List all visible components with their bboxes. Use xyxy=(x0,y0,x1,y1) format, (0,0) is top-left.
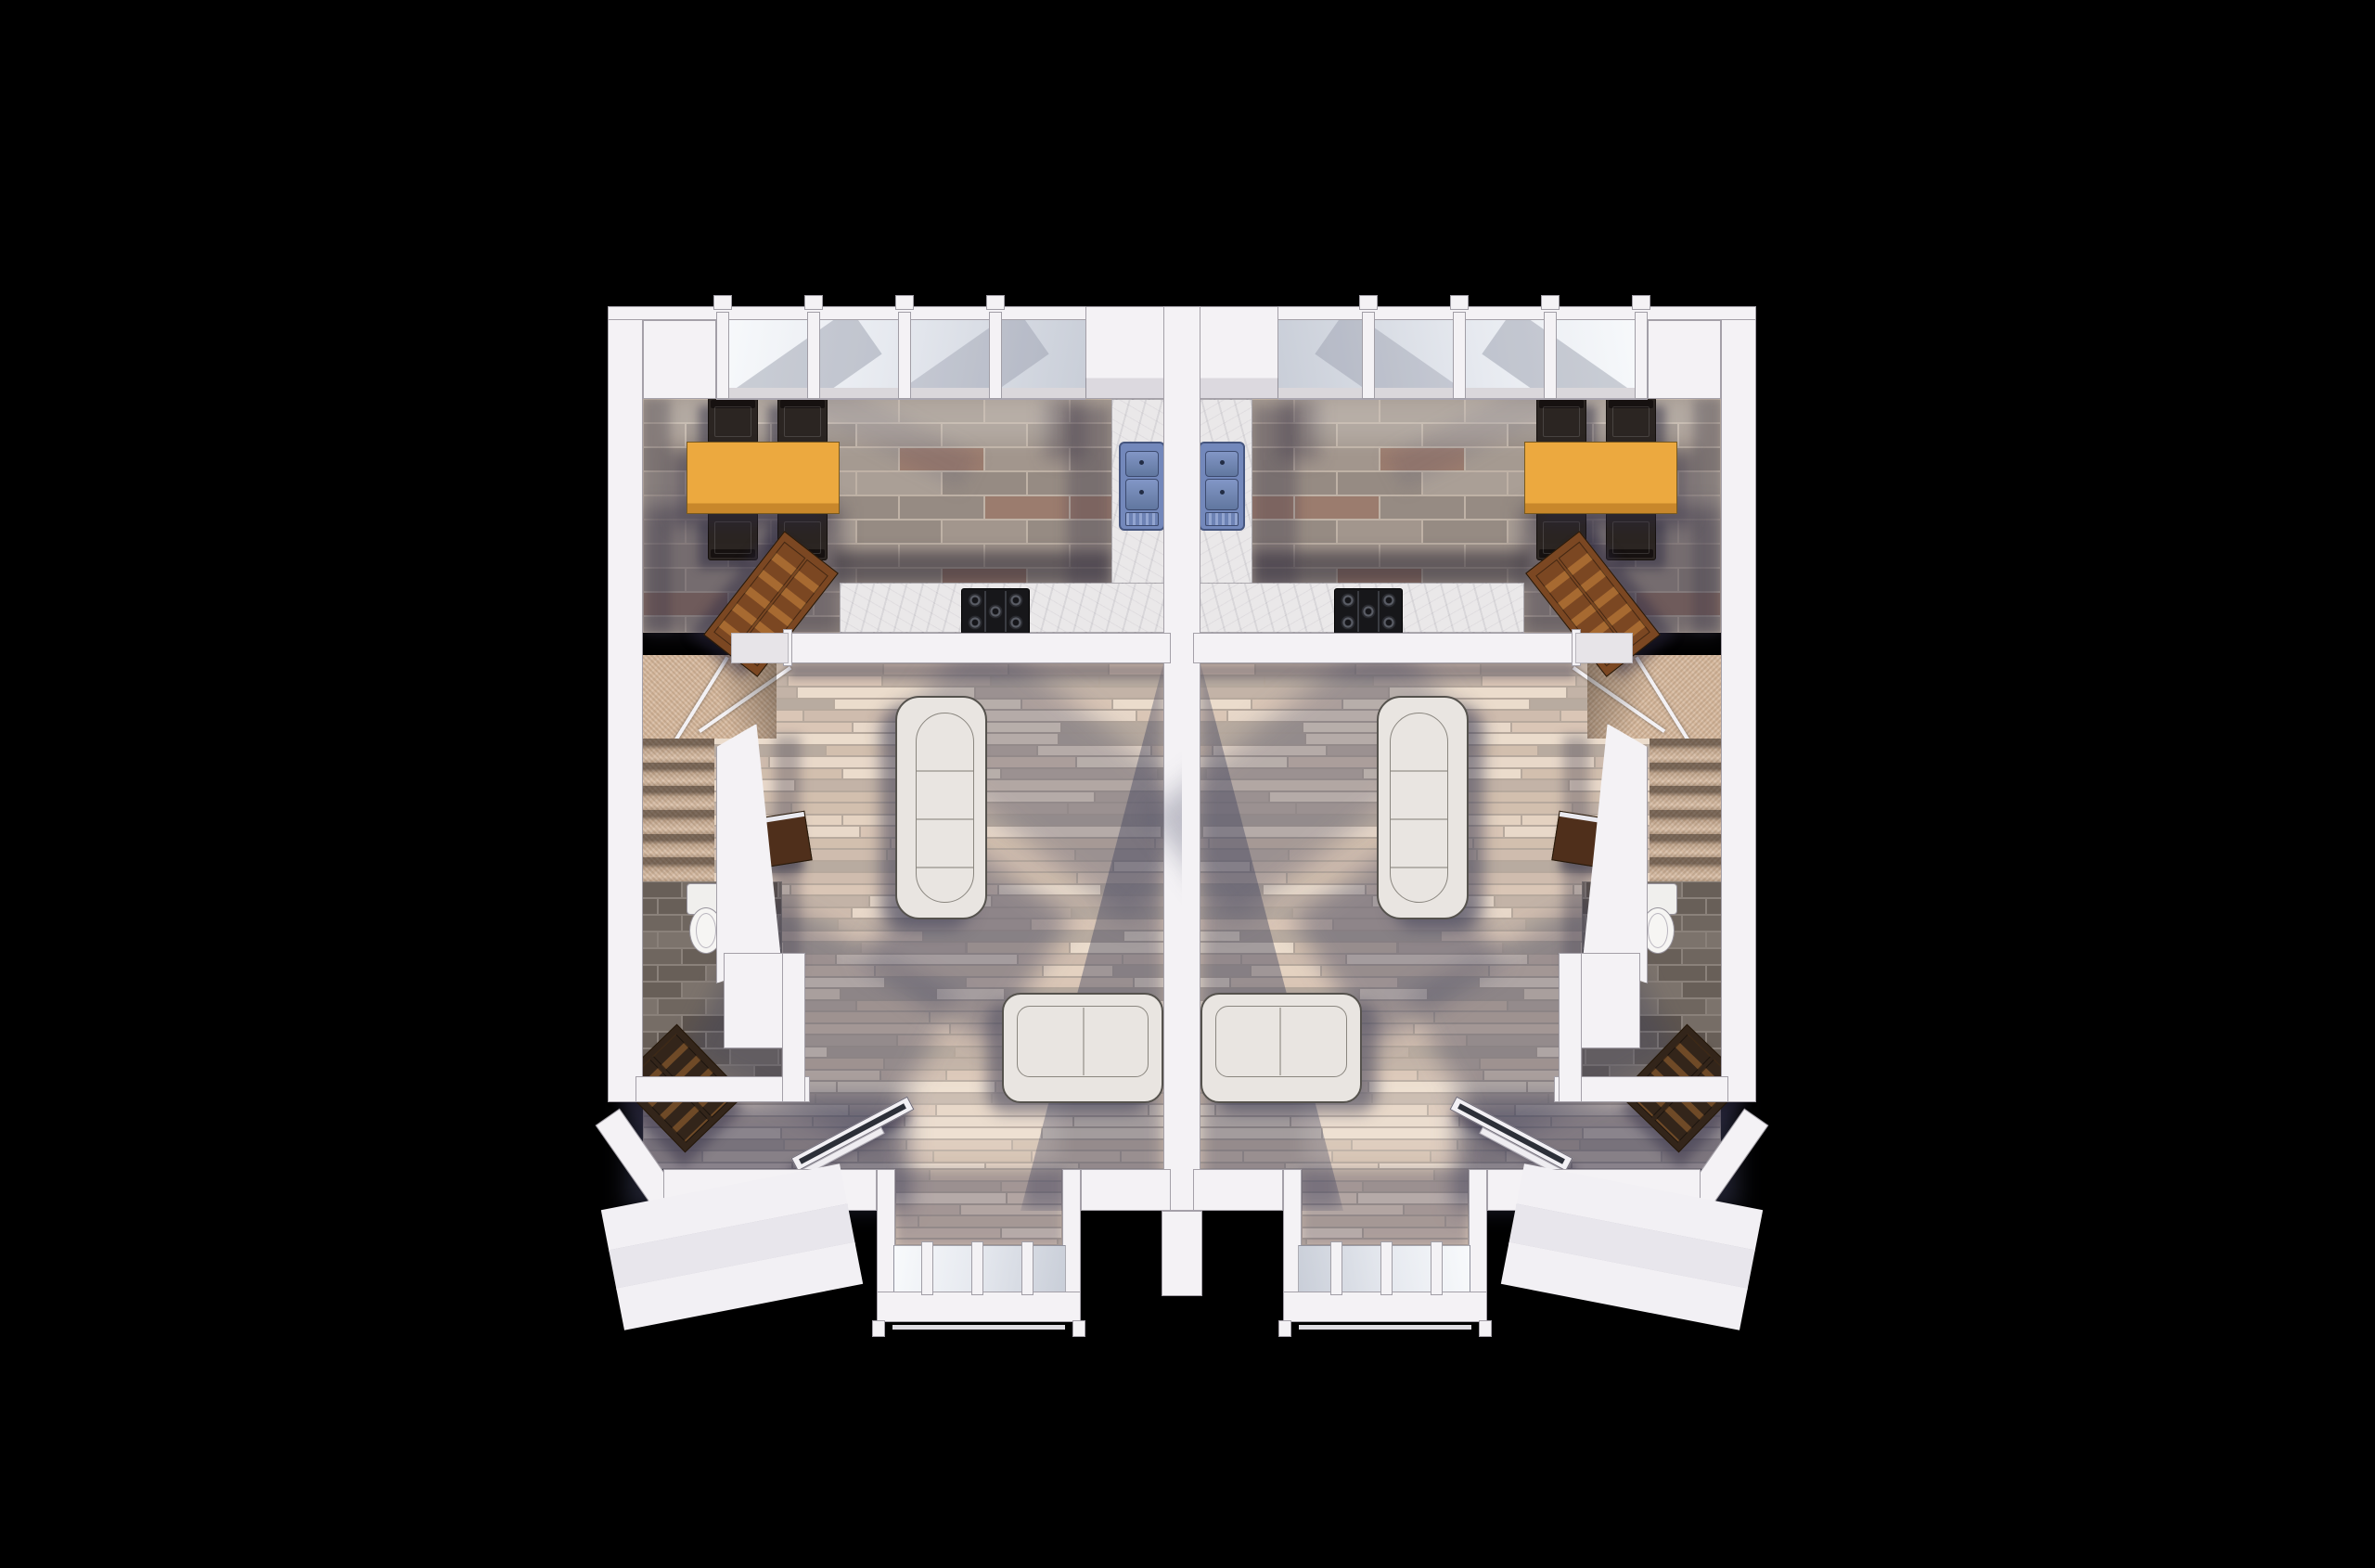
floor-tile xyxy=(659,966,705,981)
hob-center-burner xyxy=(1361,604,1376,619)
chair-backrest xyxy=(1609,549,1653,558)
chimney-breast xyxy=(1085,306,1171,399)
window-mullion-cap xyxy=(895,295,914,310)
floor-plank xyxy=(1231,978,1397,988)
floor-plank xyxy=(1265,676,1372,687)
floor-plank xyxy=(1102,885,1170,895)
floor-tile xyxy=(1583,882,1585,897)
floor-plank xyxy=(1303,1228,1362,1239)
floor-plank xyxy=(1008,1193,1061,1203)
window-mullion-cap xyxy=(1541,295,1560,310)
floor-tile xyxy=(1295,496,1379,519)
bay-window-front xyxy=(877,1292,1081,1322)
floor-plank xyxy=(924,932,1123,942)
floor-tile xyxy=(985,400,1069,422)
glazing-reflection-shadow xyxy=(1315,320,1460,389)
floor-plank xyxy=(1033,1151,1120,1162)
window-mullion xyxy=(1453,312,1466,399)
floor-plank xyxy=(1032,919,1170,930)
hob-burner xyxy=(1341,615,1355,630)
floor-plank xyxy=(919,1216,1061,1227)
floor-plank xyxy=(967,978,1133,988)
floor-plank xyxy=(1291,1117,1458,1127)
floor-plank xyxy=(1297,803,1388,814)
floor-tile xyxy=(1252,521,1336,543)
floor-plank xyxy=(1303,1193,1356,1203)
floor-tile xyxy=(1380,496,1464,519)
bay-window-mullion xyxy=(1330,1241,1342,1295)
floor-plank xyxy=(1364,1182,1468,1192)
floor-tile xyxy=(900,545,983,567)
floor-plank xyxy=(1415,1024,1576,1035)
floor-tile xyxy=(644,617,685,632)
floor-tile xyxy=(900,400,983,422)
bay-front-rail xyxy=(1299,1325,1471,1330)
floor-plank xyxy=(1194,734,1304,744)
wc-side-wall xyxy=(782,953,805,1102)
sink-drainer xyxy=(1125,512,1159,526)
floor-plank xyxy=(1369,1082,1527,1092)
window-mullion-cap xyxy=(1632,295,1650,310)
dwelling-unit-left xyxy=(584,306,1182,1331)
kitchen-sink xyxy=(1199,442,1245,531)
party-wall-front-pier xyxy=(1182,1211,1202,1296)
floor-plank xyxy=(1356,664,1480,675)
floor-plank xyxy=(976,688,1170,698)
floor-tile xyxy=(943,472,1026,495)
floor-plank xyxy=(1303,1240,1305,1244)
floor-plank xyxy=(1194,1117,1290,1127)
floor-plank xyxy=(1419,1071,1483,1081)
floor-tile xyxy=(1423,521,1507,543)
floor-plank xyxy=(1194,966,1250,976)
sink-drain xyxy=(1220,490,1225,495)
floor-tile xyxy=(1423,424,1507,446)
floor-plank xyxy=(961,1205,1061,1215)
floor-plank xyxy=(1410,1047,1535,1058)
floor-plank xyxy=(1446,1216,1468,1227)
dining-chair xyxy=(777,397,828,443)
floor-plank xyxy=(785,943,860,953)
floor-plank xyxy=(1194,873,1286,883)
sofa-small xyxy=(1200,993,1362,1103)
window-mullion-cap xyxy=(713,295,732,310)
floor-plank xyxy=(1399,978,1478,988)
sofa-cushion-seam xyxy=(1280,1008,1282,1075)
floor-tile xyxy=(1679,424,1720,446)
floor-tile xyxy=(1586,1049,1633,1064)
floor-tile xyxy=(1679,569,1720,591)
bay-window-mullion xyxy=(1380,1241,1393,1295)
chair-backrest xyxy=(711,400,755,408)
floor-plank xyxy=(1194,955,1240,965)
floor-tile xyxy=(779,1049,781,1064)
window-mullion xyxy=(1635,312,1648,399)
floor-plank xyxy=(1114,862,1170,872)
gas-hob xyxy=(1334,588,1403,635)
bay-front-rail xyxy=(892,1325,1065,1330)
floor-plank xyxy=(1074,1117,1170,1127)
floor-plank xyxy=(1100,676,1170,687)
floor-plank xyxy=(1110,664,1170,675)
floor-plank xyxy=(1043,1128,1170,1138)
floor-plank xyxy=(862,943,965,953)
floor-plank xyxy=(1113,700,1170,710)
dining-table xyxy=(1524,442,1677,514)
floor-plank xyxy=(1002,1228,1061,1239)
bay-corner-post xyxy=(1479,1320,1492,1337)
floor-tile xyxy=(1295,400,1379,422)
floor-plank xyxy=(1072,908,1170,919)
floor-plank xyxy=(937,1105,1148,1115)
sofa-cushion-seam xyxy=(1083,1008,1085,1075)
floor-tile xyxy=(644,424,685,446)
floor-plank xyxy=(1347,955,1527,965)
floor-plank xyxy=(1002,1182,1061,1192)
chair-backrest xyxy=(711,549,755,558)
floor-plank xyxy=(1194,862,1250,872)
sink-drainer xyxy=(1205,512,1239,526)
floor-plank xyxy=(1019,955,1123,965)
window-mullion xyxy=(1544,312,1557,399)
wc-side-wall xyxy=(1559,953,1582,1102)
sink-drain xyxy=(1139,490,1144,495)
floor-plank xyxy=(837,955,1017,965)
floor-tile xyxy=(731,1049,777,1064)
floor-tile xyxy=(1338,472,1421,495)
floor-plank xyxy=(1059,1240,1061,1244)
front-wall-right xyxy=(1081,1169,1171,1211)
floor-plank xyxy=(788,1024,949,1035)
floor-plank xyxy=(1194,792,1268,803)
floor-tile xyxy=(1338,424,1421,446)
floor-plank xyxy=(1374,676,1481,687)
gas-hob xyxy=(961,588,1030,635)
floor-plank xyxy=(896,1182,1000,1192)
floor-plank xyxy=(1353,1140,1457,1150)
floor-tile xyxy=(1637,593,1720,615)
floor-plank xyxy=(1194,908,1291,919)
floor-tile xyxy=(644,569,685,591)
floor-plank xyxy=(1337,1001,1507,1011)
hob-grate xyxy=(1357,591,1359,632)
floor-plank xyxy=(907,1140,1011,1150)
floor-plank xyxy=(1256,664,1354,675)
outer-wall-side xyxy=(1721,306,1756,1102)
floor-plank xyxy=(876,966,1042,976)
floor-plank xyxy=(841,989,935,999)
floor-tile xyxy=(683,983,729,997)
floor-tile xyxy=(644,472,685,495)
floor-plank xyxy=(896,1193,1006,1203)
window-mullion-cap xyxy=(1450,295,1469,310)
chair-backrest xyxy=(1539,400,1584,408)
floor-plank xyxy=(1203,827,1384,837)
floor-plank xyxy=(1210,839,1395,849)
floor-plank xyxy=(896,1216,918,1227)
hob-grate xyxy=(1378,591,1380,632)
party-wall xyxy=(1182,306,1200,1211)
floor-tile xyxy=(1659,999,1705,1014)
front-wall-right xyxy=(1193,1169,1283,1211)
floor-plank xyxy=(1077,757,1170,767)
glazing-reflection-shadow xyxy=(903,320,1048,389)
floor-plank xyxy=(1076,850,1170,860)
kitchen-doorway-threshold xyxy=(731,633,789,663)
outer-wall-side xyxy=(608,306,643,1102)
window-mullion xyxy=(716,312,729,399)
floor-plank xyxy=(1194,1151,1242,1162)
floor-plank xyxy=(976,803,1067,814)
floor-tile xyxy=(1583,1049,1585,1064)
floor-plank xyxy=(1002,769,1157,779)
floor-tile xyxy=(1635,1016,1681,1031)
sofa-small xyxy=(1002,993,1163,1103)
floor-tile xyxy=(1252,472,1336,495)
floor-plank xyxy=(1194,816,1387,826)
kitchen-doorway-threshold xyxy=(1575,633,1633,663)
kitchen-sink xyxy=(1119,442,1165,531)
dining-table xyxy=(687,442,840,514)
floor-plank xyxy=(789,676,881,687)
hob-burner xyxy=(1381,593,1396,608)
floor-plank xyxy=(1194,803,1295,814)
floor-plank xyxy=(1194,676,1264,687)
floor-tile xyxy=(1679,617,1720,632)
bay-window-mullion xyxy=(1431,1241,1443,1295)
floor-plank xyxy=(1504,943,1579,953)
floor-tile xyxy=(857,472,941,495)
chimney-breast xyxy=(1193,306,1278,399)
floor-plank xyxy=(1194,932,1239,942)
floor-plank xyxy=(937,989,1005,999)
sink-drain xyxy=(1139,460,1144,465)
floor-tile xyxy=(857,424,941,446)
window-mullion xyxy=(989,312,1002,399)
floor-plank xyxy=(1295,943,1397,953)
floor-plank xyxy=(1194,664,1254,675)
dining-chair xyxy=(1536,397,1586,443)
floor-plank xyxy=(1013,1140,1170,1150)
floor-plank xyxy=(1059,734,1170,744)
floor-plank xyxy=(1096,792,1170,803)
floor-tile xyxy=(1338,521,1421,543)
hob-center-burner xyxy=(988,604,1003,619)
floor-tile xyxy=(943,521,1026,543)
floor-plank xyxy=(869,1128,1041,1138)
dining-chair xyxy=(708,512,758,560)
floor-tile xyxy=(1423,472,1507,495)
floor-plank xyxy=(838,1082,995,1092)
window-mullion-cap xyxy=(804,295,823,310)
floor-plank xyxy=(1194,885,1262,895)
floor-plank xyxy=(1194,1163,1284,1169)
floor-plank xyxy=(1242,955,1346,965)
party-wall-front-pier xyxy=(1162,1211,1182,1296)
floor-plank xyxy=(1038,746,1149,756)
understairs-cupboard xyxy=(724,953,784,1048)
floor-plank xyxy=(993,896,1169,906)
floor-tile xyxy=(943,424,1026,446)
floor-plank xyxy=(969,839,1154,849)
window-mullion-cap xyxy=(986,295,1005,310)
floor-plank xyxy=(1078,873,1170,883)
window-mullion xyxy=(898,312,911,399)
dining-chair xyxy=(1606,512,1656,560)
floor-plank xyxy=(883,676,990,687)
party-wall xyxy=(1163,306,1182,1211)
floor-plank xyxy=(1303,1182,1362,1192)
floor-plank xyxy=(1286,1163,1378,1169)
floor-tile xyxy=(683,1016,729,1031)
floor-plank xyxy=(1194,850,1288,860)
floor-plank xyxy=(1069,803,1170,814)
floor-plank xyxy=(881,1071,945,1081)
rendered-floor-plan-scene xyxy=(0,0,2375,1568)
floor-plank xyxy=(999,885,1101,895)
floor-plank xyxy=(1303,1170,1433,1180)
floor-plank xyxy=(839,919,1029,930)
floor-plank xyxy=(1195,896,1371,906)
floor-plank xyxy=(1483,676,1575,687)
floor-plank xyxy=(1071,943,1170,953)
floor-plank xyxy=(896,1205,959,1215)
floor-plank xyxy=(1194,688,1388,698)
floor-plank xyxy=(644,1163,791,1169)
floor-plank xyxy=(1194,700,1251,710)
floor-tile xyxy=(1659,966,1705,981)
hob-grate xyxy=(984,591,986,632)
floor-tile xyxy=(779,882,781,897)
floor-tile xyxy=(1380,545,1464,567)
sofa-cushion-seam xyxy=(916,770,974,772)
sofa-cushion-seam xyxy=(916,867,974,868)
floor-plank xyxy=(1244,1151,1331,1162)
floor-plank xyxy=(1435,1170,1468,1180)
floor-tile xyxy=(659,999,705,1014)
floor-tile xyxy=(900,448,983,470)
hob-burner xyxy=(1008,593,1023,608)
floor-plank xyxy=(1364,1228,1468,1239)
floor-plank xyxy=(1194,723,1302,733)
rear-corner-pier xyxy=(1648,320,1721,399)
bay-corner-post xyxy=(872,1320,885,1337)
floor-tile xyxy=(1028,424,1111,446)
floor-plank xyxy=(977,816,1170,826)
floor-plank xyxy=(1360,989,1428,999)
floor-plank xyxy=(1303,1205,1403,1215)
floor-plank xyxy=(1080,1163,1170,1169)
floor-plank xyxy=(981,827,1162,837)
floor-plank xyxy=(1194,757,1287,767)
floor-tile xyxy=(985,448,1069,470)
sofa-cushion-seam xyxy=(1390,770,1448,772)
floor-plank xyxy=(1022,700,1111,710)
floor-plank xyxy=(644,1140,783,1150)
floor-plank xyxy=(896,1170,929,1180)
sofa-large xyxy=(1377,696,1469,919)
floor-plank xyxy=(1213,746,1325,756)
bay-window-front xyxy=(1283,1292,1487,1322)
bay-window-mullion xyxy=(921,1241,933,1295)
floor-plank xyxy=(1044,966,1112,976)
bay-window-floor xyxy=(1302,1169,1469,1245)
floor-plank xyxy=(934,1151,1031,1162)
hob-burner xyxy=(1381,615,1396,630)
window-mullion xyxy=(807,312,820,399)
hob-burner xyxy=(1341,593,1355,608)
floor-tile xyxy=(1028,521,1111,543)
floor-tile xyxy=(1380,448,1464,470)
floor-plank xyxy=(1216,1105,1427,1115)
floor-plank xyxy=(1194,1140,1351,1150)
floor-plank xyxy=(1303,1216,1444,1227)
window-mullion xyxy=(1362,312,1375,399)
floor-plank xyxy=(1405,1205,1468,1215)
floor-tile xyxy=(1295,545,1379,567)
floor-tile xyxy=(900,496,983,519)
bay-window-mullion xyxy=(971,1241,983,1295)
floor-tile xyxy=(644,521,685,543)
floor-tile xyxy=(1252,424,1336,446)
window-mullion-cap xyxy=(1359,295,1378,310)
rear-corner-pier xyxy=(643,320,716,399)
floor-tile xyxy=(1380,400,1464,422)
sofa-cushion-seam xyxy=(1390,818,1448,820)
chair-backrest xyxy=(780,400,825,408)
floor-tile xyxy=(1679,521,1720,543)
floor-plank xyxy=(1323,1128,1495,1138)
floor-plank xyxy=(1252,966,1320,976)
bay-corner-post xyxy=(1072,1320,1085,1337)
sofa-large xyxy=(895,696,987,919)
bay-window-mullion xyxy=(1021,1241,1033,1295)
floor-plank xyxy=(981,780,1167,790)
floor-plank xyxy=(992,676,1098,687)
floor-plank xyxy=(1207,769,1362,779)
floor-plank xyxy=(1358,1193,1468,1203)
floor-tile xyxy=(1028,472,1111,495)
understairs-cupboard xyxy=(1580,953,1640,1048)
floor-plank xyxy=(859,1151,931,1162)
sofa-cushion-seam xyxy=(916,818,974,820)
floor-plank xyxy=(1264,885,1366,895)
floor-tile xyxy=(1583,916,1585,931)
floor-plank xyxy=(1581,1140,1720,1150)
floor-plank xyxy=(1322,966,1488,976)
bay-corner-post xyxy=(1278,1320,1291,1337)
floor-plank xyxy=(1252,700,1342,710)
floor-plank xyxy=(968,943,1070,953)
floor-plank xyxy=(1194,1128,1321,1138)
kitchen-living-wall xyxy=(789,633,1171,663)
floor-plank xyxy=(1573,1163,1720,1169)
floor-plank xyxy=(1429,989,1522,999)
dining-chair xyxy=(1606,397,1656,443)
floor-plank xyxy=(886,978,965,988)
floor-plank xyxy=(905,1117,1072,1127)
floor-tile xyxy=(1679,472,1720,495)
floor-tile xyxy=(985,545,1069,567)
hob-burner xyxy=(1008,615,1023,630)
sink-drain xyxy=(1220,460,1225,465)
floor-tile xyxy=(1295,448,1379,470)
chair-backrest xyxy=(1609,400,1653,408)
floor-plank xyxy=(884,664,1008,675)
sofa-cushion-seam xyxy=(1390,867,1448,868)
floor-plank xyxy=(1198,780,1384,790)
kitchen-living-wall xyxy=(1193,633,1575,663)
